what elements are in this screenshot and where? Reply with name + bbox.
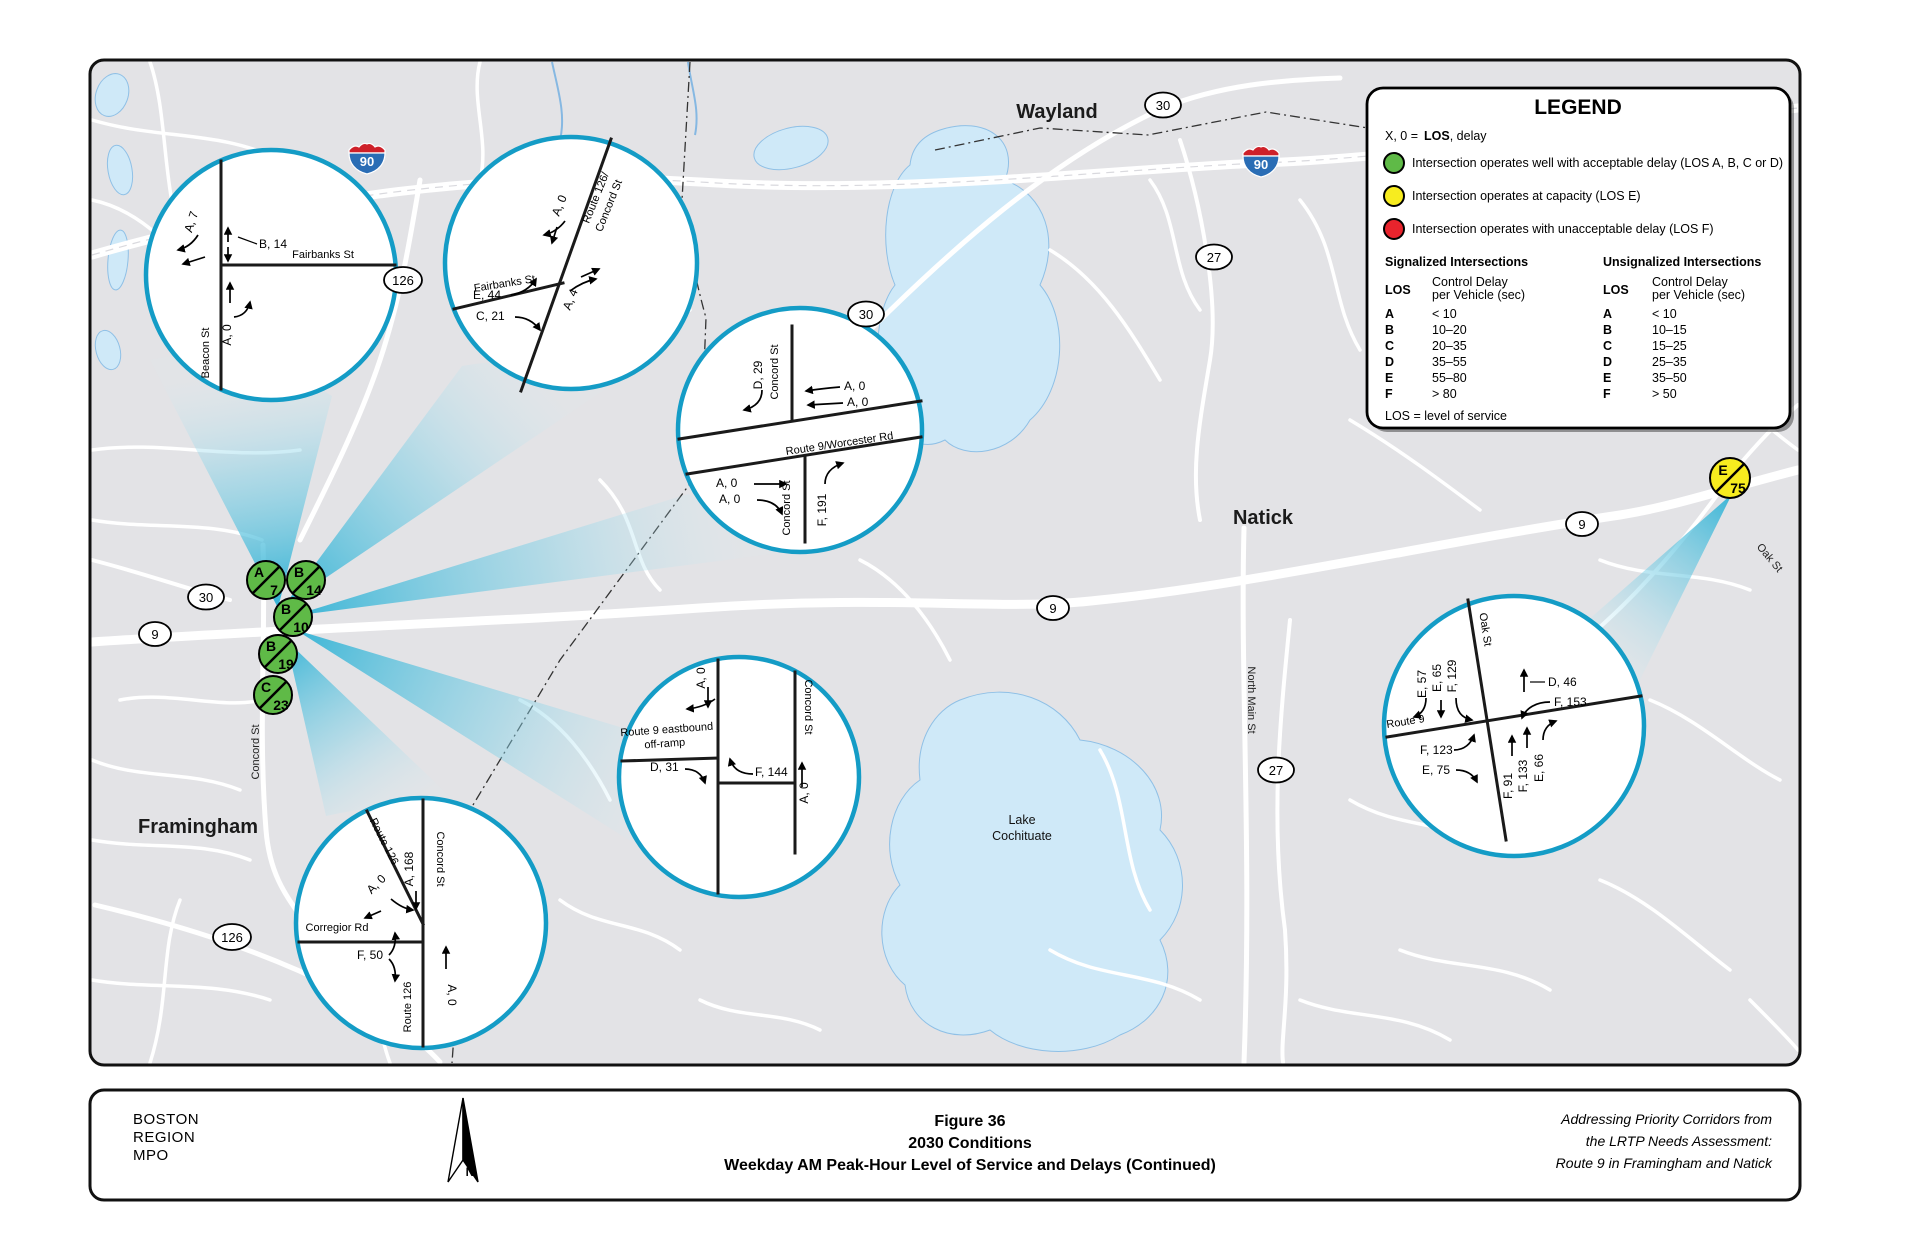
svg-text:9: 9 [1049,601,1056,616]
route-shield-9: 9 [139,622,171,646]
los-delay-label: F, 144 [755,765,788,779]
legend-unacceptable-icon [1384,219,1404,239]
north-label: N [466,1165,475,1179]
svg-text:19: 19 [278,656,294,672]
footer: BOSTON REGION MPO N Figure 36 2030 Condi… [90,1090,1800,1200]
los-delay-label: E, 57 [1415,670,1429,698]
svg-text:25–35: 25–35 [1652,355,1687,369]
callout-circle [678,308,922,552]
los-delay-label: F, 123 [1420,743,1453,757]
legend-item-label: Intersection operates at capacity (LOS E… [1412,189,1641,203]
svg-text:126: 126 [392,273,414,288]
los-delay-label: E, 44 [473,288,501,302]
svg-text:E: E [1603,371,1611,385]
los-badge-e75: E75 [1710,458,1750,498]
credit-line: Addressing Priority Corridors from [1560,1111,1772,1127]
callout-fairbanks-route126: Fairbanks St Route 126/ Concord St A, 0 … [445,137,697,391]
svg-text:7: 7 [270,582,278,598]
los-delay-label: E, 65 [1430,664,1444,692]
route-shield-30: 30 [848,302,884,327]
legend-item-label: Intersection operates well with acceptab… [1412,156,1783,170]
los-badge-a7: A7 [247,561,285,599]
svg-text:55–80: 55–80 [1432,371,1467,385]
svg-text:E: E [1718,462,1727,478]
legend-key: X, 0 =LOS, delay [1385,129,1487,143]
svg-text:A: A [1603,307,1612,321]
los-delay-label: A, 0 [716,476,738,490]
callout-route126-corregior: Concord St Route 126 Route 126 Corregior… [296,798,546,1048]
callout-circle [1384,596,1644,856]
svg-text:E: E [1385,371,1393,385]
los-delay-label: F, 133 [1516,759,1530,792]
delay-column-header: Control Delay [1652,275,1728,289]
svg-text:30: 30 [1156,98,1170,113]
svg-text:9: 9 [151,627,158,642]
los-delay-label: C, 21 [476,309,505,323]
route-shield-126: 126 [384,267,422,293]
signalized-header: Signalized Intersections [1385,255,1528,269]
los-badge-c23: C23 [254,676,292,714]
los-delay-label: A, 168 [402,851,416,886]
svg-text:A: A [1385,307,1394,321]
legend: LEGEND X, 0 =LOS, delay Intersection ope… [1367,88,1794,432]
svg-text:27: 27 [1269,763,1283,778]
los-delay-label: D, 46 [1548,675,1577,689]
town-label-framingham: Framingham [138,816,258,838]
los-column-header: LOS [1603,283,1629,297]
los-delay-label: F, 153 [1554,695,1587,709]
figure-title: Weekday AM Peak-Hour Level of Service an… [724,1157,1216,1174]
road-label-concord-st: Concord St [250,724,262,779]
svg-text:D: D [1603,355,1612,369]
svg-text:> 80: > 80 [1432,387,1457,401]
svg-text:C: C [261,679,271,695]
svg-text:C: C [1603,339,1612,353]
los-delay-label: A, 0 [694,667,708,689]
figure-number: Figure 36 [934,1113,1005,1130]
route-shield-27: 27 [1258,758,1294,783]
lake-label-line1: Lake [1008,813,1035,827]
town-label-natick: Natick [1233,507,1294,529]
svg-text:10–20: 10–20 [1432,323,1467,337]
svg-text:126: 126 [221,930,243,945]
svg-text:9: 9 [1578,517,1585,532]
svg-text:75: 75 [1730,480,1746,496]
svg-text:10: 10 [293,619,309,635]
svg-text:A: A [254,564,264,580]
svg-text:B: B [1603,323,1612,337]
road-label-north-main-st: North Main St [1245,666,1257,733]
svg-text:> 50: > 50 [1652,387,1677,401]
map-figure: Wayland Natick Framingham Lake Cochituat… [0,0,1913,1238]
svg-text:C: C [1385,339,1394,353]
unsignalized-header: Unsignalized Intersections [1603,255,1761,269]
svg-text:27: 27 [1207,250,1221,265]
agency-name-line: BOSTON [133,1111,199,1128]
svg-text:15–25: 15–25 [1652,339,1687,353]
agency-name-line: MPO [133,1147,169,1164]
legend-footnote: LOS = level of service [1385,409,1507,423]
lake-label-line2: Cochituate [992,829,1052,843]
callout-concord-route9: Concord St Concord St Route 9/Worcester … [678,308,922,552]
svg-text:10–15: 10–15 [1652,323,1687,337]
credit-line: Route 9 in Framingham and Natick [1556,1155,1773,1171]
svg-text:23: 23 [273,697,289,713]
legend-item-label: Intersection operates with unacceptable … [1412,222,1714,236]
los-badge-b14: B14 [287,561,325,599]
delay-column-header: Control Delay [1432,275,1508,289]
street-label: Concord St [434,831,446,886]
street-label: Concord St [781,480,793,535]
los-delay-label: F, 129 [1445,659,1459,692]
callout-circle [445,137,697,389]
los-delay-label: A, 0 [445,984,459,1006]
callout-circle [619,657,859,897]
route-shield-27: 27 [1196,245,1232,270]
los-delay-label: D, 29 [751,360,765,389]
svg-text:F: F [1385,387,1393,401]
svg-text:35–55: 35–55 [1432,355,1467,369]
los-badge-b10: B10 [274,598,312,636]
legend-capacity-icon [1384,186,1404,206]
svg-text:B: B [1385,323,1394,337]
svg-text:B: B [266,638,276,654]
los-delay-label: A, 0 [220,324,234,346]
los-delay-label: E, 75 [1422,763,1450,777]
callout-offramp-concord: Route 9 eastbound off-ramp Concord St A,… [619,657,859,897]
callout-beacon-fairbanks: Fairbanks St Beacon St A, 7 B, 14 A, 0 [146,150,396,400]
street-label: Route 126 [402,982,414,1033]
callout-circle [146,150,396,400]
street-label: Concord St [802,679,814,734]
los-delay-label: A, 0 [844,379,866,393]
delay-column-header: per Vehicle (sec) [1652,288,1745,302]
route-shield-9: 9 [1566,512,1598,536]
svg-text:90: 90 [1254,157,1268,172]
los-delay-label: A, 0 [797,782,811,804]
los-delay-label: D, 31 [650,760,679,774]
street-label: Concord St [769,344,781,399]
route-shield-9: 9 [1037,596,1069,620]
svg-text:< 10: < 10 [1652,307,1677,321]
credit-line: the LRTP Needs Assessment: [1586,1133,1772,1149]
legend-good-icon [1384,153,1404,173]
los-delay-label: B, 14 [259,237,287,251]
street-label: Corregior Rd [306,922,369,934]
los-delay-label: F, 50 [357,948,383,962]
svg-text:14: 14 [306,582,322,598]
los-delay-label: F, 191 [815,493,829,526]
route-shield-126: 126 [213,924,251,950]
svg-text:B: B [294,564,304,580]
route-shield-30: 30 [1145,93,1181,118]
street-label: Fairbanks St [292,249,354,261]
figure-subtitle: 2030 Conditions [908,1135,1032,1152]
svg-text:< 10: < 10 [1432,307,1457,321]
los-delay-label: A, 0 [719,492,741,506]
los-column-header: LOS [1385,283,1411,297]
los-delay-label: E, 66 [1532,754,1546,782]
callout-route9-oak: Route 9 Oak St E, 57 E, 65 F, 129 D, 46 … [1384,596,1644,856]
svg-text:B: B [281,601,291,617]
figure-page: Wayland Natick Framingham Lake Cochituat… [0,0,1913,1238]
agency-name-line: REGION [133,1129,195,1146]
svg-text:D: D [1385,355,1394,369]
delay-column-header: per Vehicle (sec) [1432,288,1525,302]
svg-text:30: 30 [859,307,873,322]
los-delay-label: F, 91 [1501,773,1515,799]
svg-text:30: 30 [199,590,213,605]
svg-text:F: F [1603,387,1611,401]
svg-text:20–35: 20–35 [1432,339,1467,353]
los-delay-label: A, 0 [847,395,869,409]
svg-text:90: 90 [360,154,374,169]
street-label: Beacon St [200,328,212,379]
los-badge-b19: B19 [259,635,297,673]
legend-title: LEGEND [1534,96,1622,119]
route-shield-30: 30 [188,585,224,610]
svg-text:35–50: 35–50 [1652,371,1687,385]
town-label-wayland: Wayland [1016,101,1098,123]
